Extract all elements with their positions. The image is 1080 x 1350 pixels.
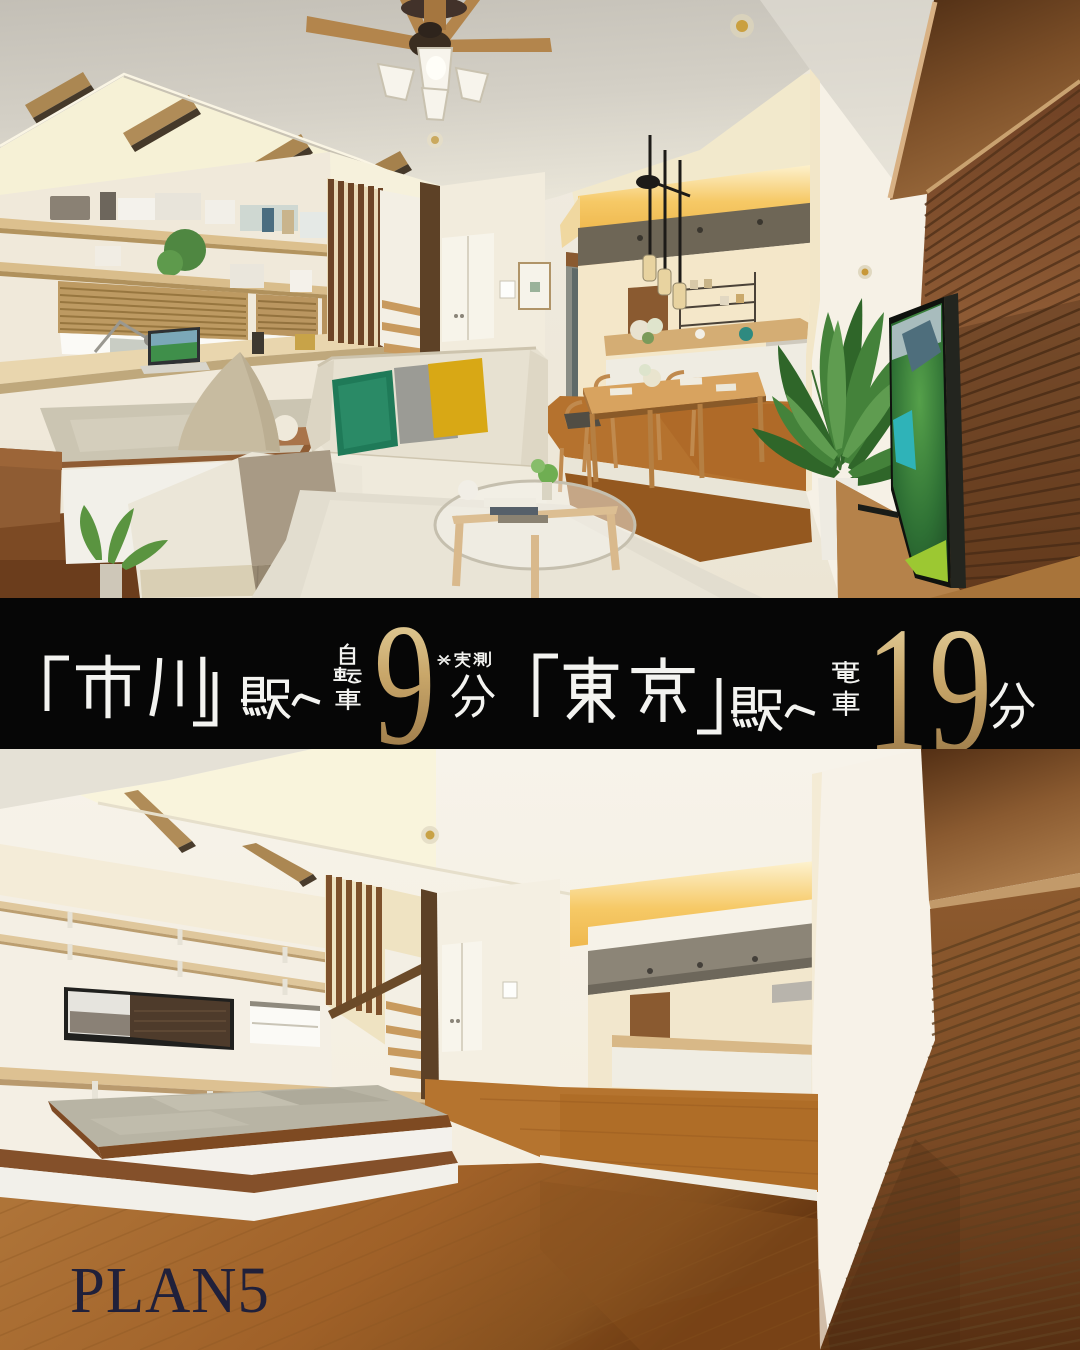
svg-text:PLAN5: PLAN5 [70,1254,270,1327]
svg-text:19: 19 [866,598,992,749]
svg-text:9: 9 [374,598,435,749]
